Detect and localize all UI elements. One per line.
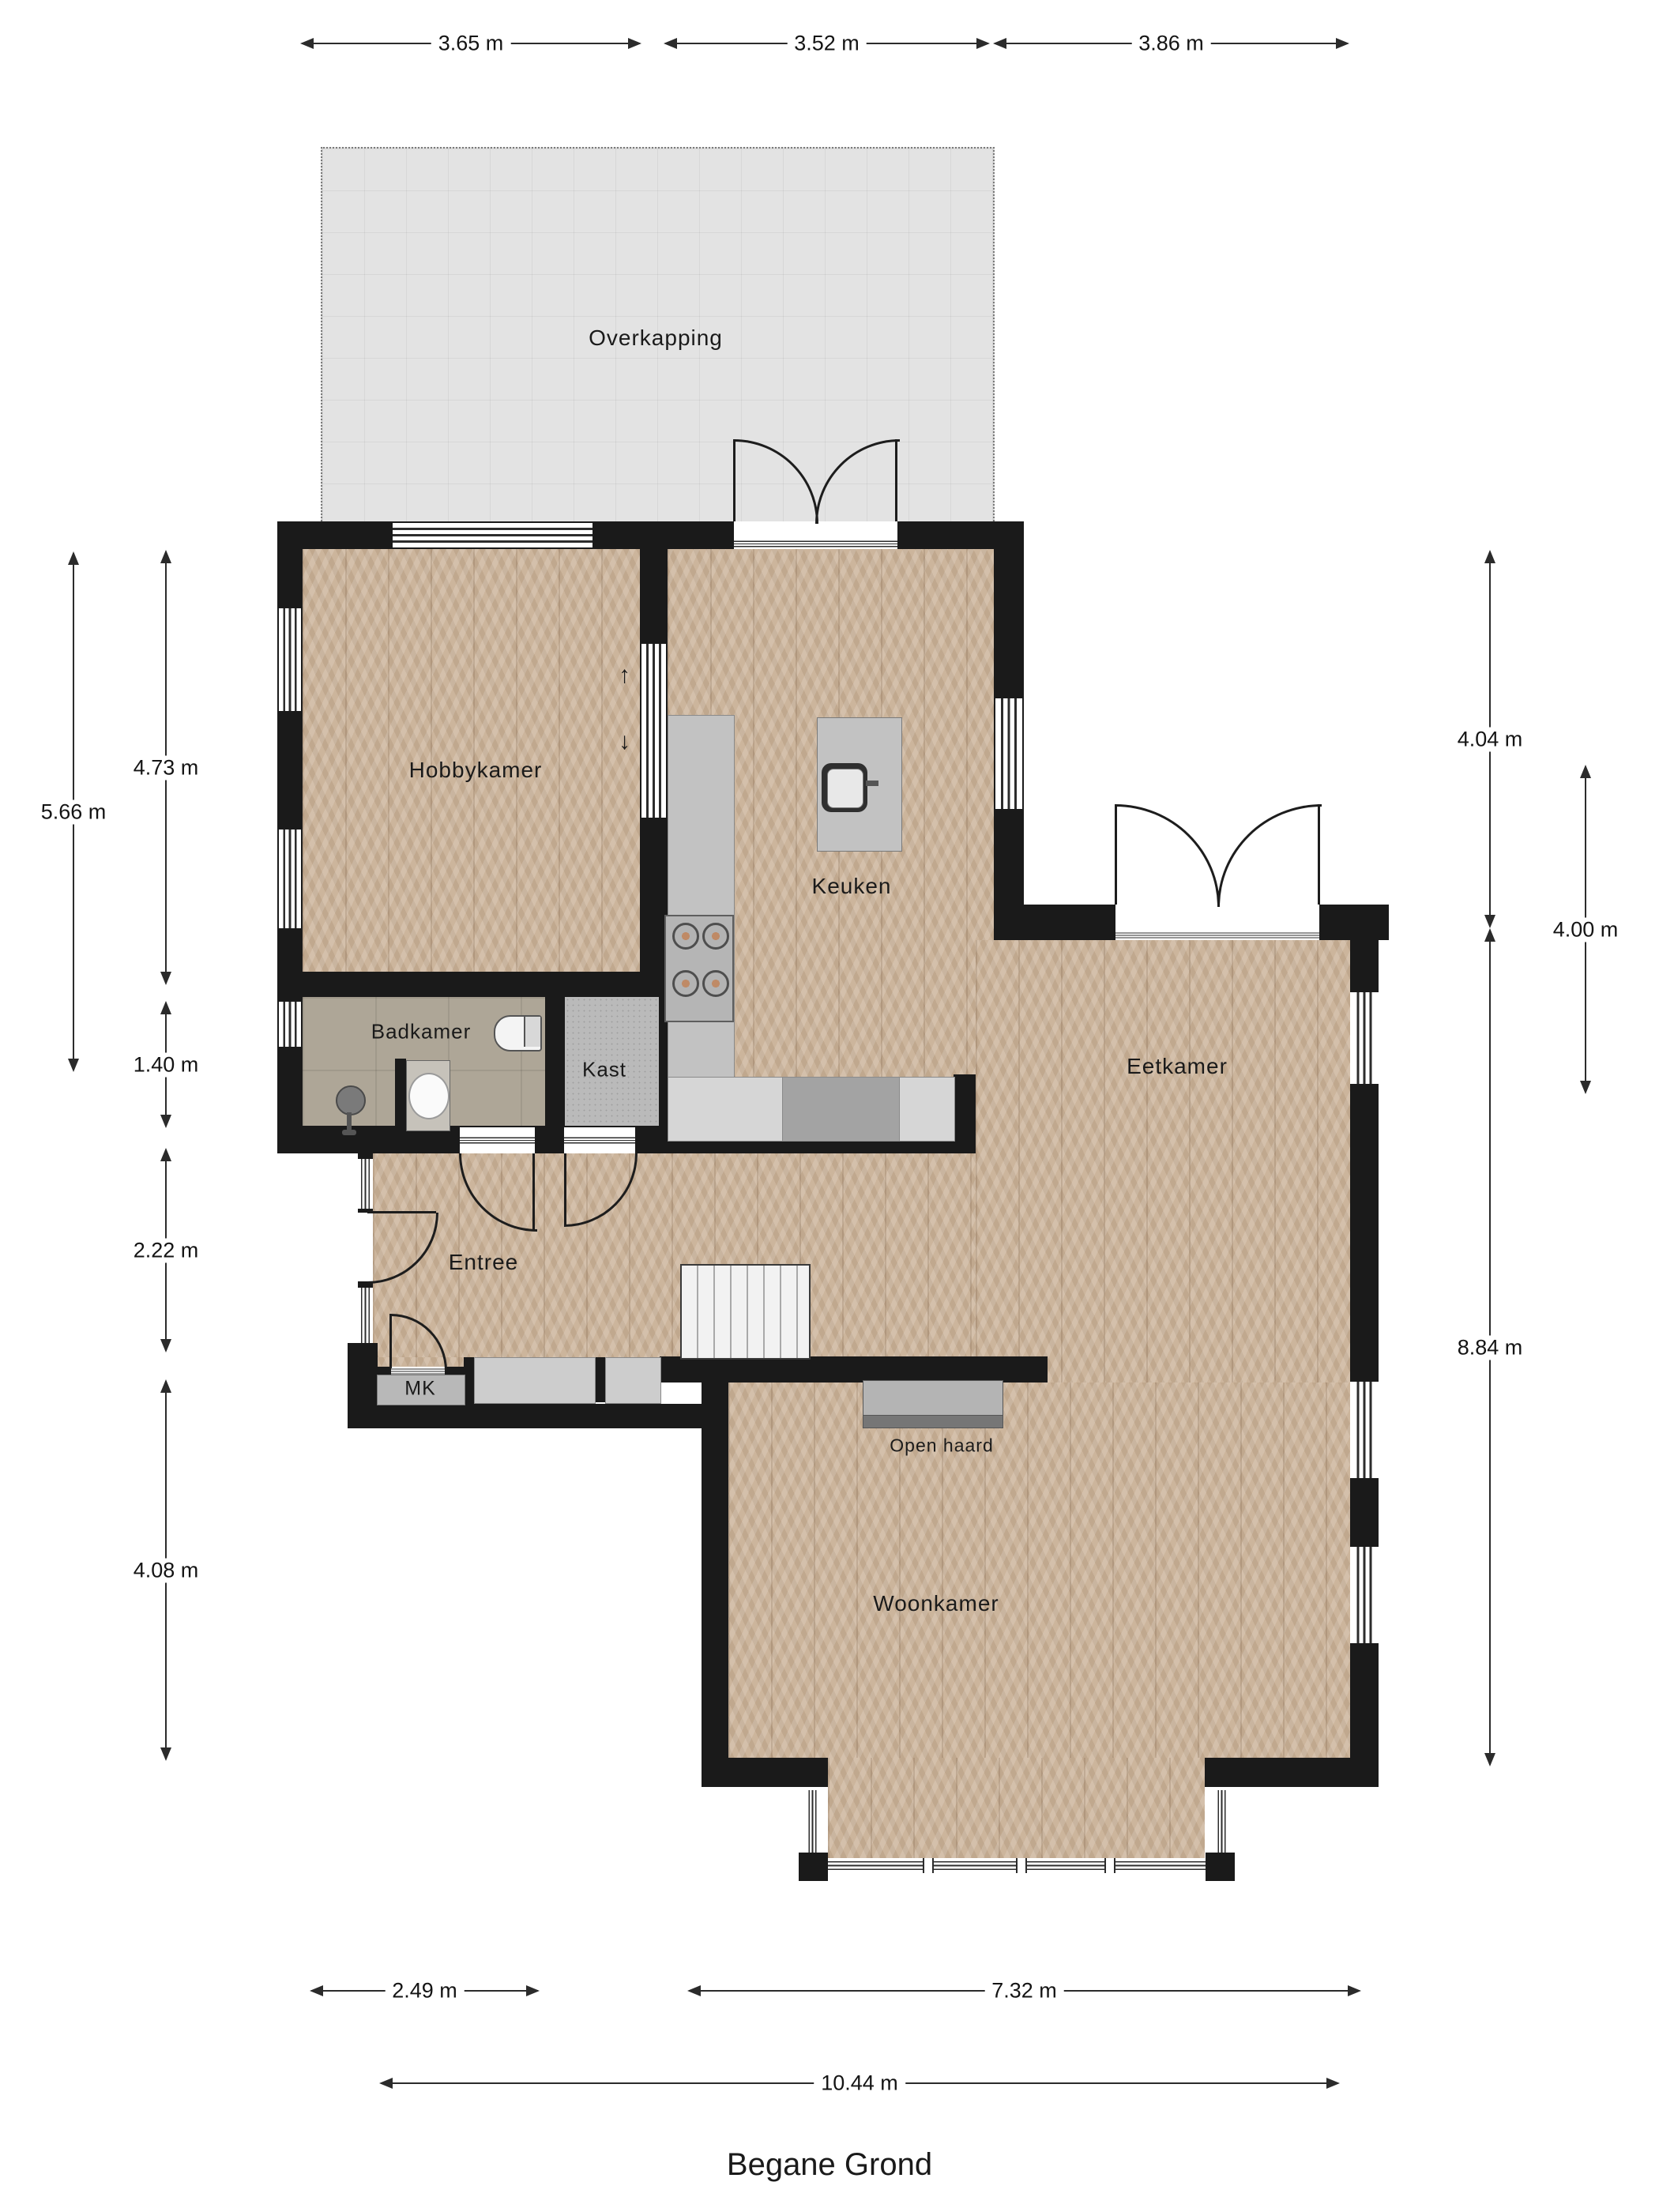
arrowhead-icon (976, 38, 990, 49)
shower-stem (347, 1112, 352, 1131)
wall-right-seg2 (1350, 1084, 1379, 1382)
cabinet-2 (605, 1357, 661, 1404)
toilet-tank (524, 1017, 540, 1047)
room-label-hobbykamer: Hobbykamer (409, 758, 543, 783)
dimension-top-1: 3.65 m (300, 32, 641, 55)
door-leaf (895, 439, 897, 521)
wall-stairs-bottom (660, 1356, 1048, 1382)
wall-counter-stub (954, 1074, 976, 1153)
dim-label: 2.22 m (126, 1238, 206, 1262)
burner-icon (702, 923, 729, 950)
wall-badkamer-top (277, 972, 668, 997)
window-mullion (1104, 1858, 1115, 1873)
dimension-right-2: 8.84 m (1478, 928, 1502, 1766)
room-label-open-haard: Open haard (890, 1435, 993, 1457)
window-entree-2 (358, 1288, 373, 1343)
dim-label: 1.40 m (126, 1052, 206, 1077)
dimension-left-4: 2.22 m (154, 1148, 178, 1352)
wall-woonkamer-left (702, 1382, 728, 1787)
arrowhead-icon (160, 1148, 171, 1161)
window-eetkamer-right (1352, 992, 1377, 1084)
dimension-top-2: 3.52 m (664, 32, 990, 55)
wall-cabinet-divider (594, 1357, 605, 1402)
window-sill-badkamer-door (460, 1135, 535, 1145)
window-badkamer (279, 1002, 301, 1047)
window-sill-eetkamer-doors (1115, 931, 1319, 940)
window-hobbykamer-top (393, 523, 592, 547)
arrowhead-icon (1580, 1081, 1591, 1094)
dim-label: 10.44 m (814, 2071, 905, 2096)
dimension-left-5: 4.08 m (154, 1379, 178, 1761)
faucet-icon (866, 781, 878, 786)
dim-label: 3.65 m (431, 32, 511, 56)
room-label-kast: Kast (582, 1058, 626, 1082)
window-hobby-left-1 (279, 608, 301, 711)
arrow-up-icon: ↑ (619, 662, 630, 689)
dim-label: 4.73 m (126, 755, 206, 780)
floor-eetkamer (976, 940, 1350, 1382)
wall-badkamer-kast (545, 997, 565, 1126)
arrowhead-icon (1336, 38, 1349, 49)
dim-label: 7.32 m (984, 1979, 1064, 2003)
room-label-keuken: Keuken (812, 874, 892, 899)
arrowhead-icon (160, 1379, 171, 1393)
dim-label: 8.84 m (1450, 1335, 1530, 1360)
dim-label: 2.49 m (385, 1979, 465, 2003)
arrowhead-icon (160, 550, 171, 563)
door-leaf (532, 1153, 535, 1229)
floor-woonkamer (728, 1382, 1350, 1758)
window-sill-kast-door (564, 1135, 635, 1145)
room-label-badkamer: Badkamer (371, 1020, 472, 1044)
dimension-right-1: 4.04 m (1478, 550, 1502, 928)
stairs (680, 1264, 811, 1360)
burner-icon (672, 970, 699, 997)
arrowhead-icon (1326, 2078, 1340, 2089)
arrowhead-icon (1580, 765, 1591, 778)
door-leaf (733, 439, 735, 521)
window-sill-keuken-doors (734, 539, 897, 549)
dim-label: 3.52 m (787, 32, 867, 56)
dimension-top-3: 3.86 m (993, 32, 1349, 55)
dim-label: 4.08 m (126, 1558, 206, 1582)
arrowhead-icon (160, 1115, 171, 1128)
dimension-bottom-2: 7.32 m (687, 1979, 1361, 2003)
wall-bay-post-right (1206, 1853, 1235, 1881)
window-keuken-right (995, 698, 1022, 809)
arrowhead-icon (1484, 915, 1495, 928)
arrowhead-icon (687, 1985, 701, 1996)
wall-sink-partition (395, 1059, 406, 1131)
wall-eetkamer-top-right (1319, 905, 1389, 940)
wall-bay-post-left (799, 1853, 828, 1881)
arrowhead-icon (160, 1339, 171, 1352)
burner-icon (702, 970, 729, 997)
floor-bay (828, 1758, 1205, 1858)
fireplace-hearth (863, 1415, 1003, 1428)
dim-label: 3.86 m (1131, 32, 1211, 56)
arrowhead-icon (160, 1747, 171, 1761)
door-leaf (1318, 804, 1320, 905)
bathroom-sink-basin (408, 1073, 450, 1119)
window-bay-right (1215, 1790, 1228, 1853)
cabinet-1 (474, 1357, 596, 1404)
arrow-down-icon: ↓ (619, 728, 630, 755)
dim-label: 5.66 m (34, 799, 114, 824)
dimension-bottom-3: 10.44 m (379, 2071, 1340, 2095)
wall-right-seg3 (1350, 1478, 1379, 1547)
dimension-left-3: 1.40 m (154, 1001, 178, 1128)
arrowhead-icon (310, 1985, 323, 1996)
arrowhead-icon (664, 38, 677, 49)
dimension-right-3: 4.00 m (1574, 765, 1597, 1094)
arrowhead-icon (1484, 928, 1495, 942)
arrowhead-icon (379, 2078, 393, 2089)
window-woonkamer-right-1 (1352, 1382, 1377, 1478)
dimension-bottom-1: 2.49 m (310, 1979, 540, 2003)
dim-label: 4.04 m (1450, 727, 1530, 751)
window-mullion (1016, 1858, 1027, 1873)
door-leaf (1115, 804, 1117, 905)
passage-hobby-keuken (641, 644, 666, 818)
shower-base (342, 1130, 356, 1135)
arrowhead-icon (68, 551, 79, 565)
kitchen-counter-bottom-dark (782, 1077, 900, 1142)
shower-head-icon (336, 1085, 366, 1115)
floorplan-begane-grond: Overkapping (0, 0, 1659, 2212)
arrowhead-icon (68, 1059, 79, 1072)
arrowhead-icon (993, 38, 1006, 49)
dim-label: 4.00 m (1546, 917, 1626, 942)
arrowhead-icon (160, 1001, 171, 1014)
door-leaf (564, 1153, 566, 1224)
arrowhead-icon (300, 38, 314, 49)
fireplace-top (863, 1380, 1003, 1416)
room-label-mk: MK (404, 1378, 436, 1401)
door-leaf (367, 1211, 436, 1213)
window-mullion (923, 1858, 934, 1873)
stove (664, 915, 734, 1022)
room-label-entree: Entree (449, 1250, 519, 1275)
arrowhead-icon (160, 972, 171, 985)
wall-bottom-left-outer (348, 1404, 728, 1428)
window-hobby-left-2 (279, 829, 301, 928)
arrowhead-icon (628, 38, 641, 49)
window-bay-left (806, 1790, 819, 1853)
arrowhead-icon (1484, 1753, 1495, 1766)
arrowhead-icon (526, 1985, 540, 1996)
wall-entree-left-post (348, 1343, 378, 1404)
dimension-left-2: 4.73 m (154, 550, 178, 985)
page-title: Begane Grond (0, 2147, 1659, 2183)
room-label-overkapping: Overkapping (589, 325, 723, 351)
room-label-woonkamer: Woonkamer (873, 1591, 999, 1616)
arrowhead-icon (1484, 550, 1495, 563)
island-sink-basin (827, 769, 863, 808)
wall-top (277, 521, 1024, 549)
door-leaf (389, 1314, 392, 1368)
arrowhead-icon (1348, 1985, 1361, 1996)
window-entree-1 (358, 1159, 373, 1209)
wall-right-seg1 (1350, 940, 1379, 992)
door-eetkamer-french-right (1217, 804, 1322, 907)
room-label-eetkamer: Eetkamer (1127, 1054, 1228, 1079)
dimension-left-1: 5.66 m (62, 551, 85, 1072)
burner-icon (672, 923, 699, 950)
window-woonkamer-right-2 (1352, 1547, 1377, 1643)
door-eetkamer-french-left (1115, 804, 1220, 907)
wall-eetkamer-top-left (994, 905, 1115, 940)
wall-bottom-right-step (1205, 1758, 1379, 1787)
